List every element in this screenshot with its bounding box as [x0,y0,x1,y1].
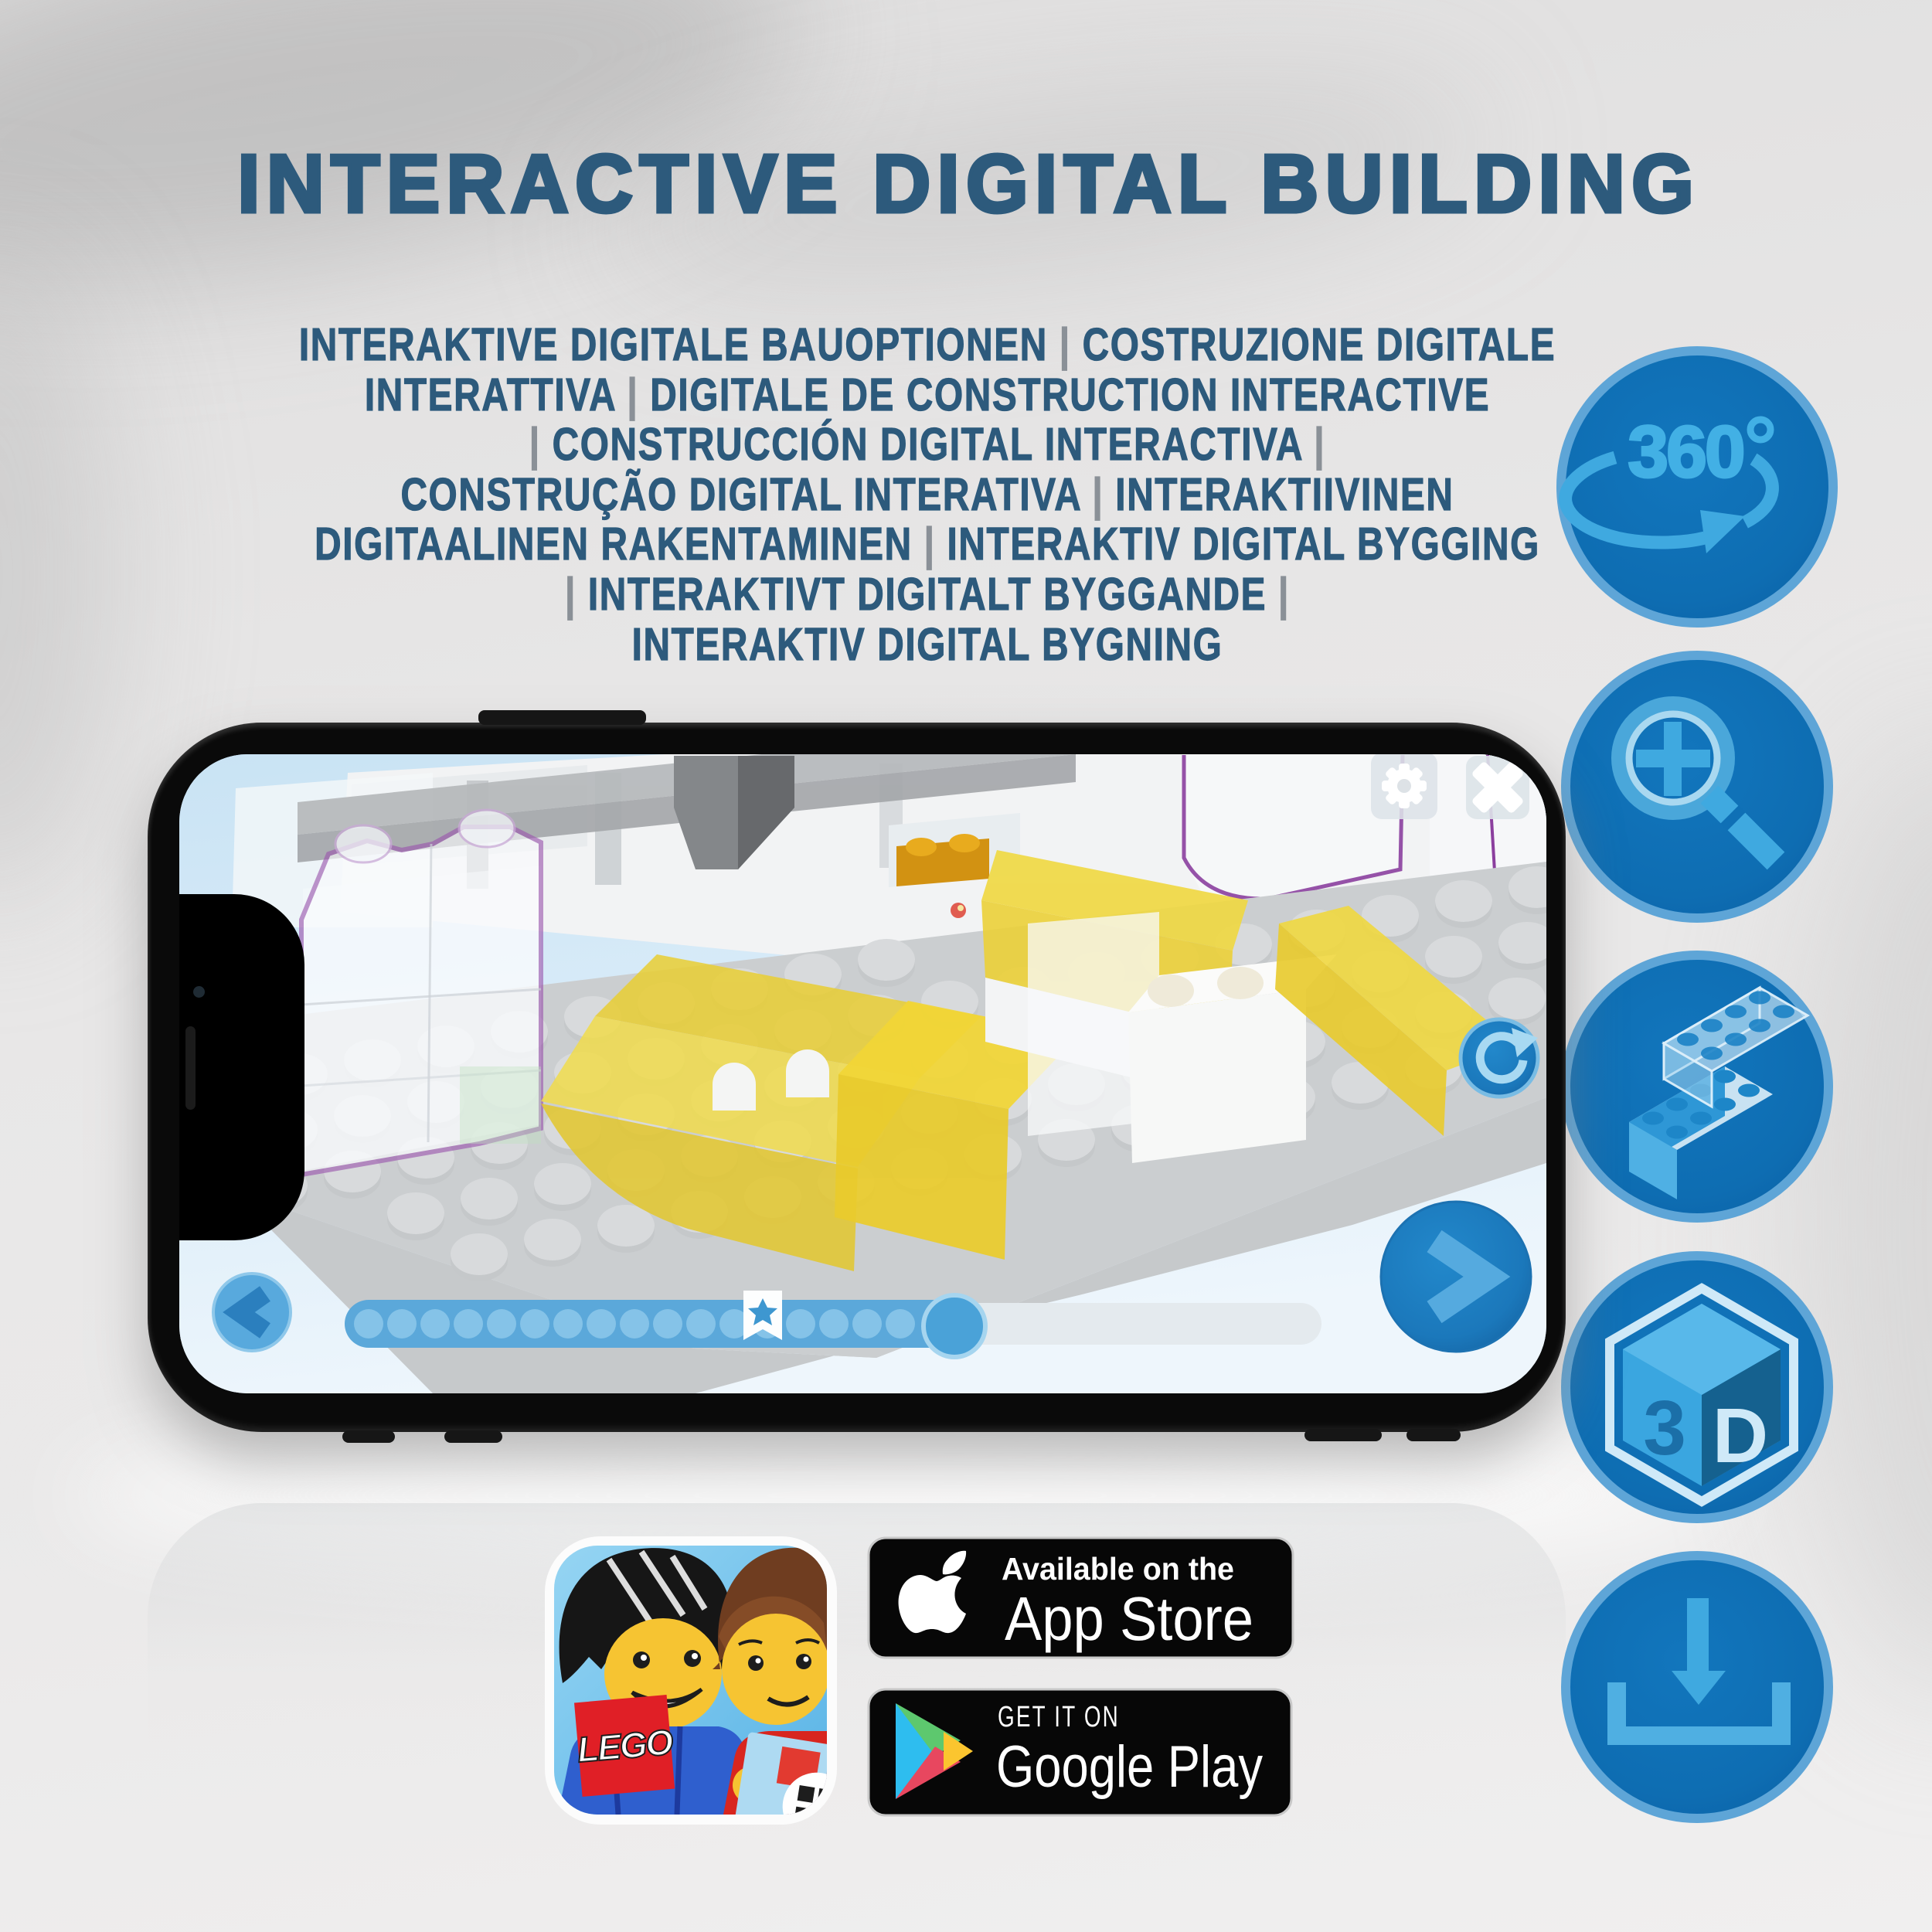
svg-text:D: D [1713,1393,1768,1479]
svg-text:LEGO: LEGO [576,1722,675,1770]
svg-text:App Store: App Store [1005,1584,1253,1653]
svg-text:3: 3 [1643,1385,1686,1471]
svg-text:Available on the: Available on the [1002,1551,1234,1587]
svg-text:Google Play: Google Play [996,1734,1263,1800]
svg-text:GET IT ON: GET IT ON [998,1701,1120,1733]
svg-text:360: 360 [1628,411,1743,493]
